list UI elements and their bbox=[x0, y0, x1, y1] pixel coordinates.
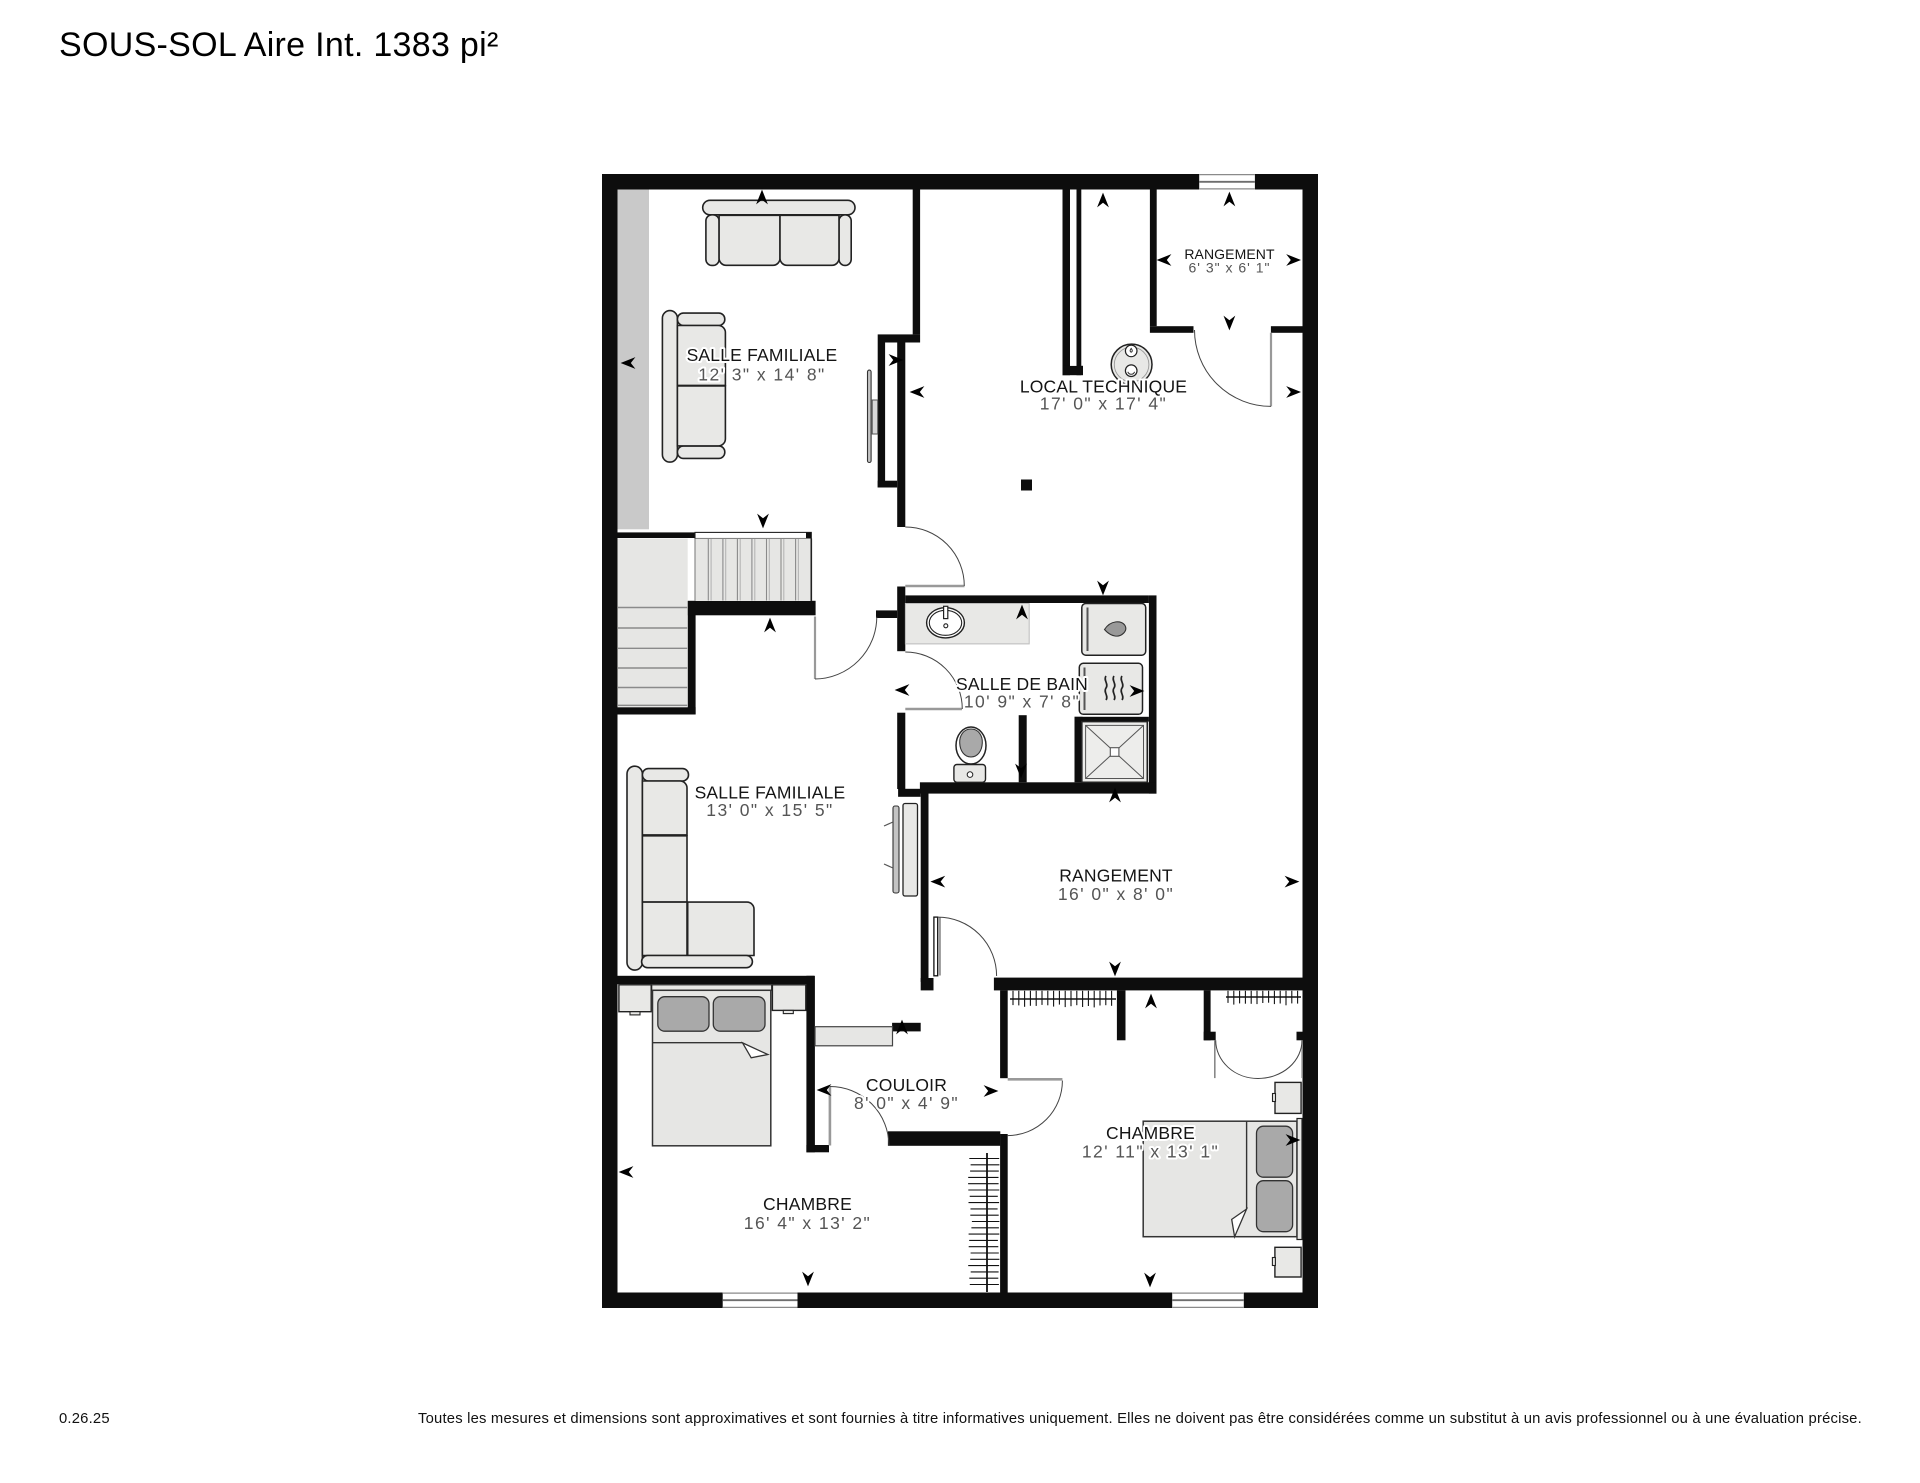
svg-text:SALLE FAMILIALE: SALLE FAMILIALE bbox=[687, 345, 838, 365]
svg-text:12' 3" x 14' 8": 12' 3" x 14' 8" bbox=[698, 365, 825, 385]
svg-text:17' 0" x 17' 4": 17' 0" x 17' 4" bbox=[1040, 394, 1167, 414]
svg-text:RANGEMENT: RANGEMENT bbox=[1059, 866, 1173, 886]
svg-text:6' 3" x 6' 1": 6' 3" x 6' 1" bbox=[1189, 260, 1271, 276]
svg-text:16' 4" x 13' 2": 16' 4" x 13' 2" bbox=[744, 1213, 871, 1233]
svg-text:CHAMBRE: CHAMBRE bbox=[1106, 1123, 1195, 1143]
svg-text:16' 0" x 8' 0": 16' 0" x 8' 0" bbox=[1058, 884, 1174, 904]
svg-text:COULOIR: COULOIR bbox=[866, 1075, 947, 1095]
svg-text:12' 11" x 13' 1": 12' 11" x 13' 1" bbox=[1082, 1142, 1219, 1162]
svg-text:8' 0" x 4' 9": 8' 0" x 4' 9" bbox=[854, 1093, 959, 1113]
svg-text:CHAMBRE: CHAMBRE bbox=[763, 1194, 852, 1214]
svg-text:10' 9" x 7' 8": 10' 9" x 7' 8" bbox=[964, 692, 1080, 712]
svg-text:13' 0" x 15' 5": 13' 0" x 15' 5" bbox=[706, 800, 833, 820]
